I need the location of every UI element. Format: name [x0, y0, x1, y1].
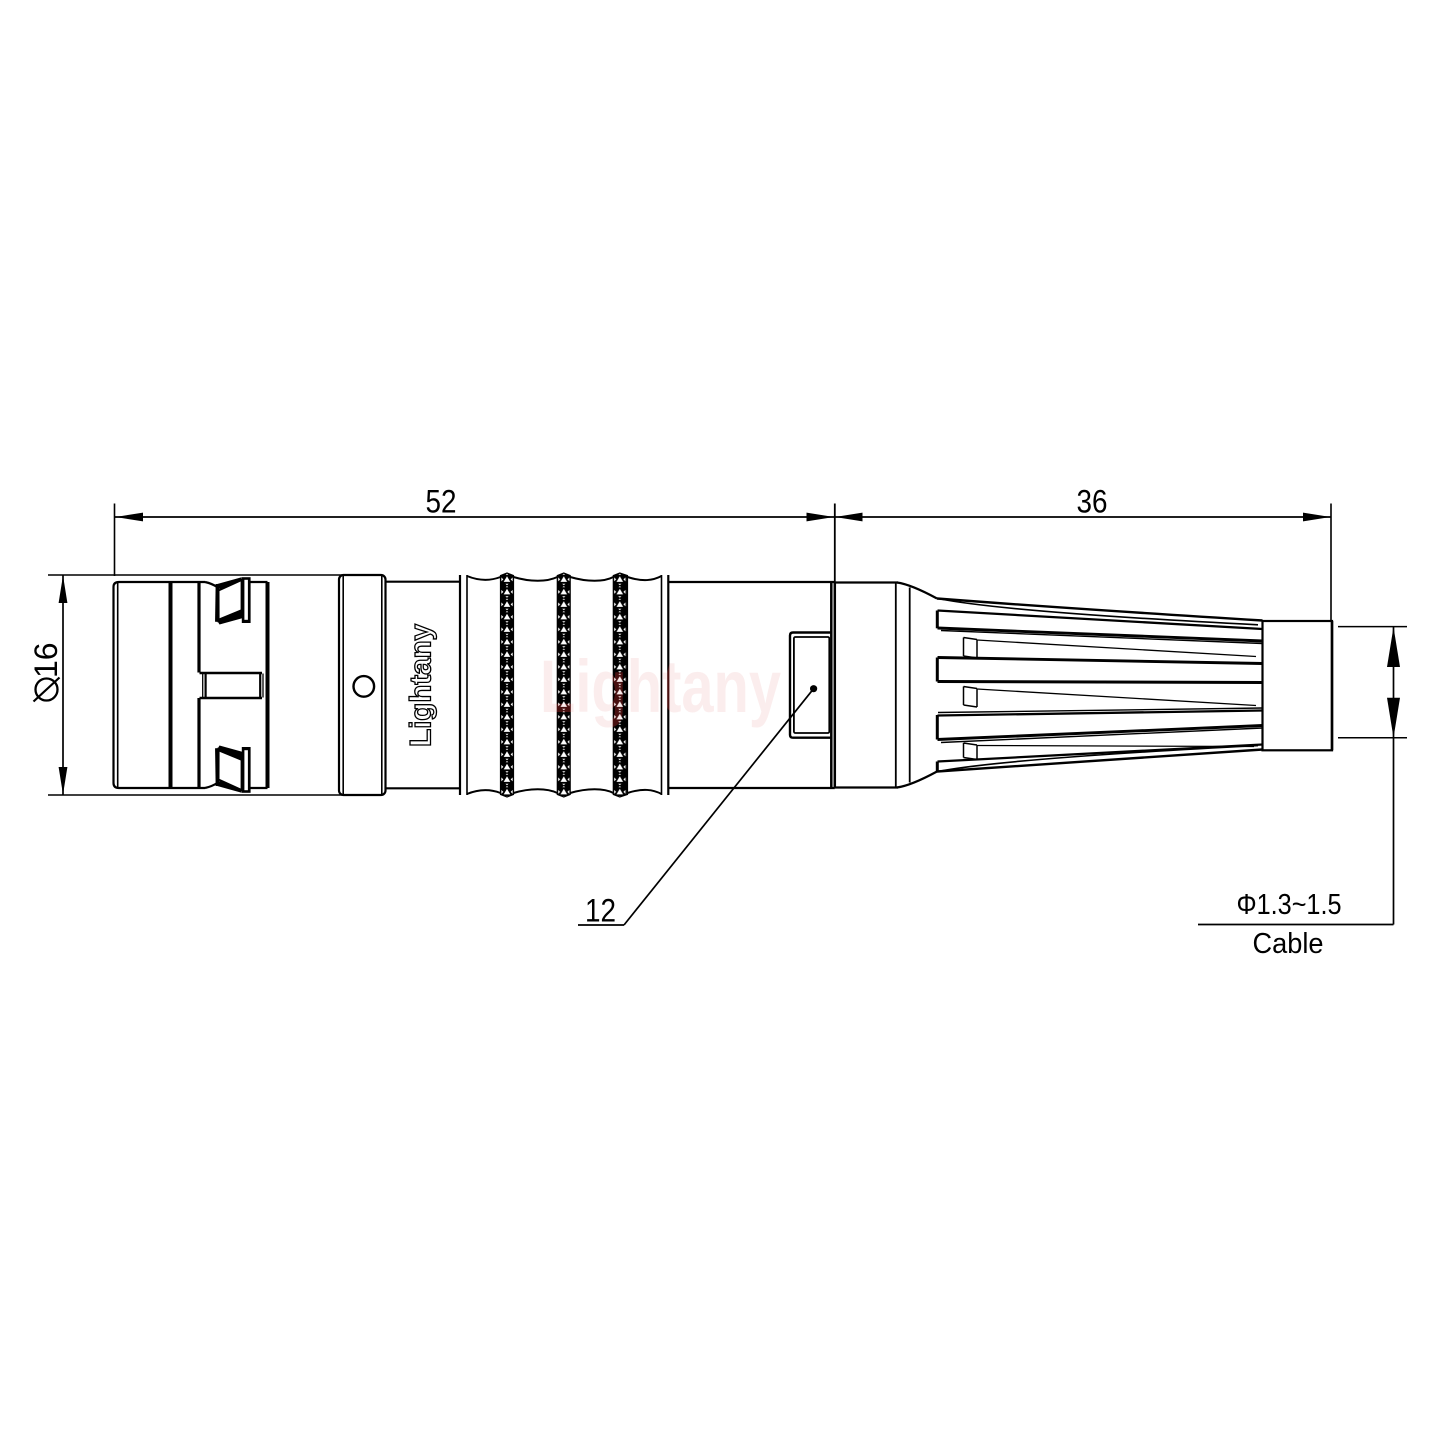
svg-text:16: 16 — [28, 642, 64, 678]
svg-text:12: 12 — [585, 893, 616, 929]
svg-text:52: 52 — [426, 484, 457, 520]
svg-text:Φ1.3~1.5: Φ1.3~1.5 — [1237, 889, 1342, 921]
svg-text:Lightany: Lightany — [540, 645, 781, 728]
svg-text:Cable: Cable — [1253, 928, 1324, 960]
svg-text:Lightany: Lightany — [405, 623, 438, 747]
svg-text:36: 36 — [1077, 484, 1108, 520]
